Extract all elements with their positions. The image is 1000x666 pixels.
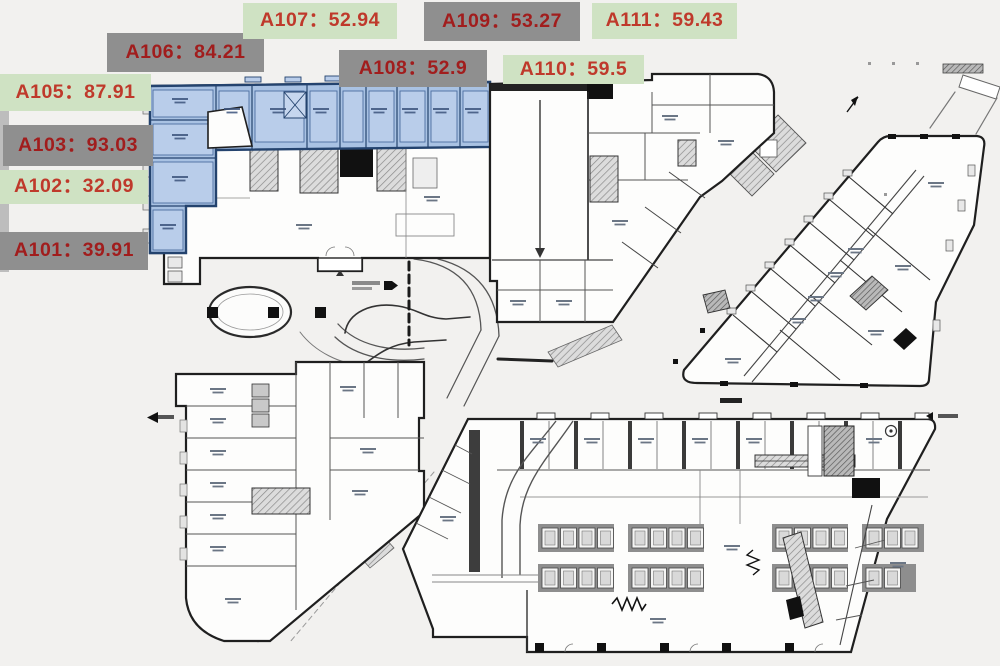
unit-label-a109[interactable]: A109：53.27 bbox=[424, 2, 580, 41]
unit-label-a101[interactable]: A101：39.91 bbox=[0, 232, 148, 270]
elevator-icon bbox=[284, 92, 306, 118]
building-bottom bbox=[403, 413, 935, 652]
stair-core bbox=[590, 156, 618, 202]
shaft bbox=[852, 478, 880, 498]
stair-core bbox=[678, 140, 696, 166]
road-label-mark bbox=[720, 398, 742, 403]
unit-label-a108[interactable]: A108：52.9 bbox=[339, 50, 487, 87]
survey-marker-icon bbox=[886, 426, 897, 437]
escalator-core bbox=[824, 426, 854, 476]
column bbox=[315, 307, 326, 318]
shaft bbox=[587, 82, 613, 99]
stair-core bbox=[250, 145, 278, 191]
column bbox=[268, 307, 279, 318]
entry-vestibule bbox=[318, 258, 362, 271]
elevator-core bbox=[252, 384, 269, 427]
unit-label-a102[interactable]: A102：32.09 bbox=[0, 170, 148, 204]
stair-core bbox=[252, 488, 310, 514]
stair-core bbox=[377, 145, 406, 191]
unit-label-a110[interactable]: A110：59.5 bbox=[503, 55, 644, 84]
thick-wall bbox=[469, 430, 480, 572]
column bbox=[207, 307, 218, 318]
north-wall-band bbox=[491, 84, 588, 91]
shaft bbox=[340, 147, 373, 177]
unit-label-a103[interactable]: A103：93.03 bbox=[3, 125, 153, 166]
unit-label-a107[interactable]: A107：52.94 bbox=[243, 3, 397, 39]
unit-label-a106[interactable]: A106：84.21 bbox=[107, 33, 264, 72]
elevator-core bbox=[300, 145, 338, 193]
unit-label-a111[interactable]: A111：59.43 bbox=[592, 3, 737, 39]
floor-plan-screenshot: A101：39.91A102：32.09A103：93.03A105：87.91… bbox=[0, 0, 1000, 666]
unit-label-a105[interactable]: A105：87.91 bbox=[0, 74, 151, 111]
